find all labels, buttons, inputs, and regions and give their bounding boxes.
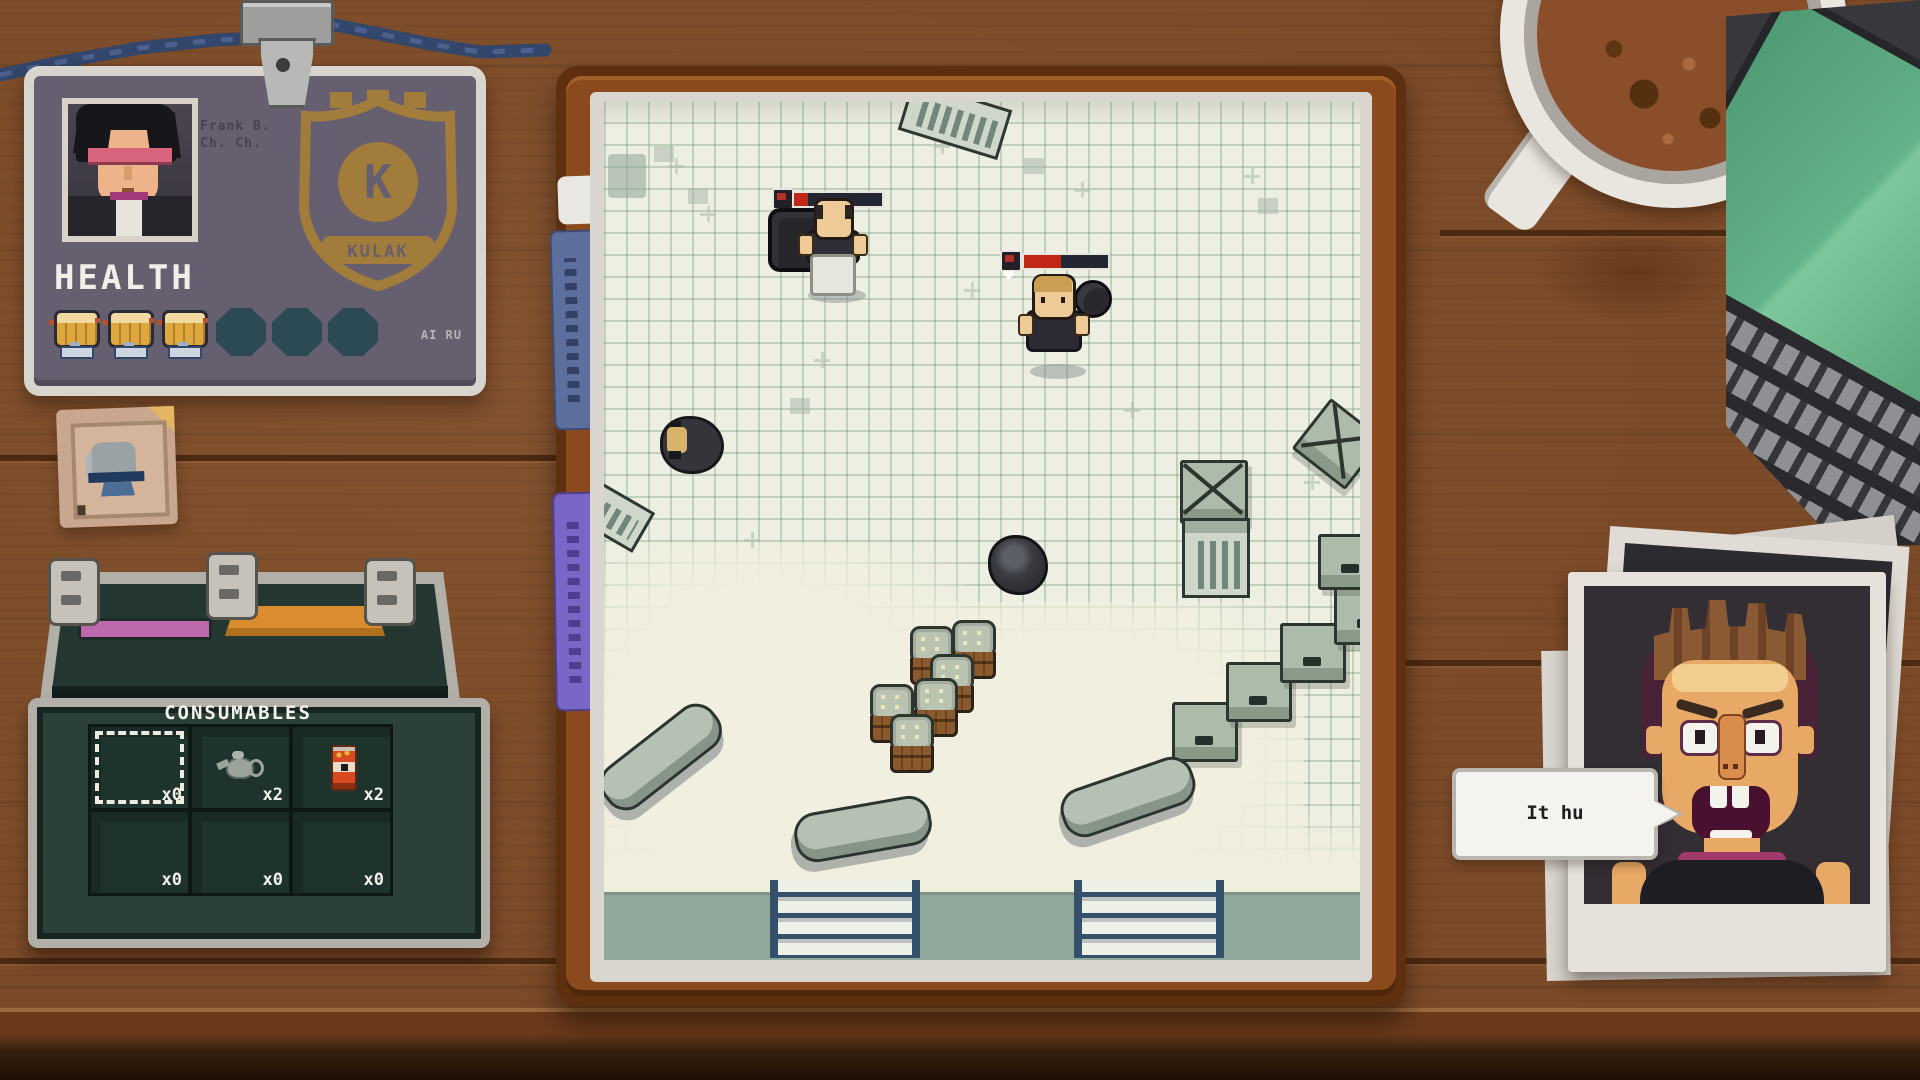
teapot-icon xyxy=(220,751,254,777)
enemy2-health-fill xyxy=(1024,255,1061,268)
health-fist-icon xyxy=(50,306,100,356)
case-latch xyxy=(48,558,100,626)
speech-bubble: It hu xyxy=(1452,768,1658,860)
radiator-bars xyxy=(910,102,999,149)
grid-cross-mark xyxy=(668,158,684,174)
grid-cross-mark xyxy=(744,532,760,548)
grid-cross-mark xyxy=(964,282,980,298)
slot-count: x2 xyxy=(263,785,283,805)
can-label-mark xyxy=(341,764,348,771)
enemy2-hair xyxy=(1034,276,1072,292)
crate[interactable] xyxy=(1334,585,1360,645)
slot-count: x0 xyxy=(162,785,182,805)
enemy-unit-2[interactable]: ♥ xyxy=(1000,248,1120,388)
unit-shadow xyxy=(1030,364,1086,379)
crate-x-tilted[interactable] xyxy=(1292,398,1360,490)
enemy-unit-1[interactable] xyxy=(764,186,884,316)
slot-count: x0 xyxy=(364,870,384,890)
inventory-slot-5[interactable]: x0 xyxy=(189,809,292,896)
enemy2-head xyxy=(1032,274,1076,320)
eye xyxy=(1680,720,1720,756)
grid-cross-mark xyxy=(700,206,716,222)
open-mouth xyxy=(1692,786,1770,844)
health-fist-icon xyxy=(104,306,154,356)
enemy2-arm xyxy=(1074,314,1090,336)
helmet-detail xyxy=(669,451,681,459)
consumables-briefcase: CONSUMABLES x0 x2 x2 x0 x0 xyxy=(0,540,500,940)
bottom-wall xyxy=(604,892,1360,960)
crate-x[interactable] xyxy=(1180,460,1248,524)
stairs xyxy=(1074,880,1224,958)
helmet-token[interactable] xyxy=(660,416,724,474)
eye xyxy=(1742,720,1782,756)
nose xyxy=(1718,714,1746,780)
radiator-front xyxy=(1182,518,1250,598)
slot-count: x0 xyxy=(162,870,182,890)
spiked-ball[interactable] xyxy=(988,535,1048,595)
health-empty-slot xyxy=(216,308,266,356)
slot-count: x2 xyxy=(364,785,384,805)
badge-letter: K xyxy=(364,155,392,209)
paper-worn-band xyxy=(604,802,1360,897)
desk-edge-shadow xyxy=(0,1008,1920,1080)
badge-clip-hole xyxy=(276,58,290,72)
id-text-line1: Frank B. xyxy=(200,118,271,135)
case-latch xyxy=(206,552,258,620)
inventory-slot-1[interactable]: x0 xyxy=(88,724,191,811)
helmet-visor xyxy=(667,427,687,453)
pencil-smudge xyxy=(790,398,810,414)
nostril xyxy=(1723,764,1728,769)
ear xyxy=(1646,726,1664,754)
barrel[interactable] xyxy=(890,714,934,774)
game-scene: Frank B. Ch. Ch. K KULAK HEALTH xyxy=(0,0,1920,1080)
consumables-title: CONSUMABLES xyxy=(88,702,388,724)
fist-item-icon xyxy=(91,441,136,475)
pencil-smudge xyxy=(608,154,646,198)
inventory-slot-6[interactable]: x0 xyxy=(290,809,393,896)
radiator-bars xyxy=(1192,541,1240,589)
case-latch xyxy=(364,558,416,626)
portrait-shirt xyxy=(116,196,142,236)
ink-mark xyxy=(77,505,85,515)
badge-banner-text: KULAK xyxy=(347,242,408,262)
crate[interactable] xyxy=(1318,534,1360,590)
portrait-collar xyxy=(110,192,148,200)
enemy2-eye xyxy=(1041,297,1045,303)
radiator-prop xyxy=(898,102,1013,160)
enemy1-arm xyxy=(852,234,868,256)
laptop xyxy=(1726,0,1920,545)
radiator-top-band xyxy=(1185,521,1247,533)
id-text-line2: Ch. Ch. xyxy=(200,135,271,152)
portrait-glasses xyxy=(88,148,172,162)
health-fist-icon xyxy=(158,306,208,356)
card-watermark: AI RU xyxy=(421,328,462,342)
pencil-smudge xyxy=(688,188,708,204)
police-badge-emblem: K KULAK xyxy=(292,90,464,304)
fist-item-base xyxy=(88,471,144,483)
player-portrait xyxy=(62,98,198,242)
stairs xyxy=(770,880,920,958)
enemy1-hair-side xyxy=(816,205,823,219)
portrait-nose xyxy=(124,166,132,180)
tooth xyxy=(1732,786,1749,808)
pencil-smudge xyxy=(1024,158,1044,174)
enemy1-arm xyxy=(798,234,814,256)
speech-bubble-tail xyxy=(1652,800,1678,828)
radiator-bars xyxy=(604,499,639,540)
tab-text-marks xyxy=(567,520,582,683)
speech-text: It hu xyxy=(1456,802,1654,824)
grid-cross-mark xyxy=(1124,402,1140,418)
crate-x-line xyxy=(1301,434,1360,447)
battlefield-grid[interactable]: ♥ xyxy=(604,102,1360,960)
slot-count: x0 xyxy=(263,870,283,890)
enemy1-portrait-icon xyxy=(772,188,794,210)
tank-top xyxy=(1640,860,1824,904)
inventory-slot-2[interactable]: x2 xyxy=(189,724,292,811)
tooth xyxy=(1710,786,1727,808)
pupil xyxy=(1755,730,1765,744)
enemy1-head xyxy=(814,198,854,240)
pencil-smudge xyxy=(1258,198,1278,214)
health-empty-slot xyxy=(272,308,322,356)
grid-cross-mark xyxy=(1244,168,1260,184)
enemy2-arm xyxy=(1018,314,1034,336)
id-badge-card: Frank B. Ch. Ch. K KULAK HEALTH xyxy=(24,66,486,396)
enemy2-health-bar xyxy=(1022,253,1110,270)
id-text: Frank B. Ch. Ch. xyxy=(200,118,271,152)
soda-can-icon xyxy=(331,745,357,791)
item-card-fist[interactable] xyxy=(56,406,178,528)
tab-text-marks xyxy=(564,258,580,402)
health-icons-row xyxy=(50,306,390,358)
nostril xyxy=(1733,764,1738,769)
inventory-slot-4[interactable]: x0 xyxy=(88,809,191,896)
enemy1-hair-side xyxy=(845,205,852,219)
pupil xyxy=(1695,730,1705,744)
grid-cross-mark xyxy=(814,352,830,368)
enemy2-eye xyxy=(1061,297,1065,303)
fist-item-pedestal xyxy=(101,481,135,496)
grid-cross-mark xyxy=(1074,182,1090,198)
health-empty-slot xyxy=(328,308,378,356)
coffee-stain xyxy=(1535,222,1735,322)
grid-cross-mark xyxy=(1304,474,1320,490)
enemy1-apron xyxy=(810,254,856,296)
ear xyxy=(1796,726,1814,754)
helmet-detail xyxy=(671,421,681,427)
forehead-highlight xyxy=(1672,664,1788,692)
health-label: HEALTH xyxy=(54,258,195,298)
heart-icon: ♥ xyxy=(1003,270,1015,283)
enemy1-health-fill xyxy=(794,193,808,206)
inventory-slot-3[interactable]: x2 xyxy=(290,724,393,811)
